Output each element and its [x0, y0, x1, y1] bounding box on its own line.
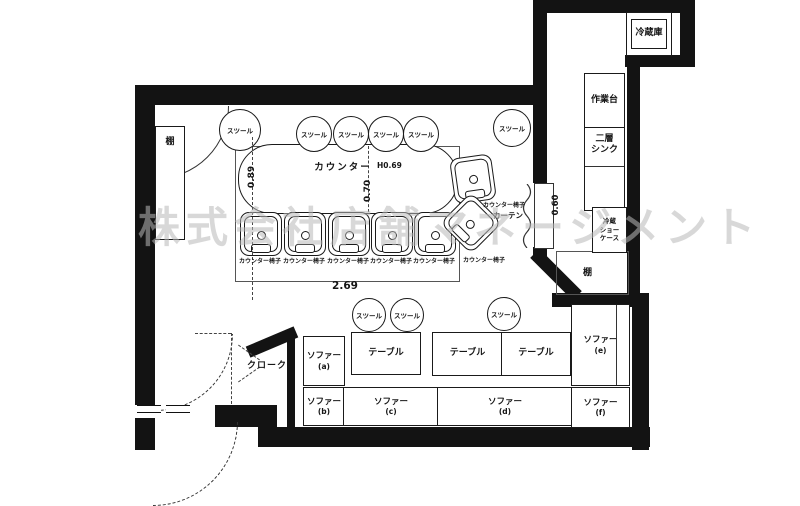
stool-label: スツール	[227, 125, 253, 135]
sofa-name: ソファー	[374, 397, 408, 408]
watermark: 株式会社店舗マネージメント	[138, 194, 761, 255]
refrigerator: 冷蔵庫	[626, 12, 672, 56]
stool-label: スツール	[373, 129, 399, 139]
work-table: 作業台	[584, 73, 625, 129]
stool: スツール	[487, 297, 521, 331]
sofa-tag: (e)	[595, 346, 607, 355]
counter-label: カウンター	[308, 159, 378, 173]
wall-divider-upper	[533, 13, 547, 183]
table-label: テーブル	[518, 348, 553, 359]
shelf-kitchen-label: 棚	[583, 265, 592, 278]
stool-label: スツール	[356, 310, 382, 320]
wall-cloak-right	[287, 330, 295, 430]
cloak-label: クローク	[238, 358, 296, 371]
sofa-f: ソファー (f)	[571, 387, 630, 428]
sofa-name: ソファー	[488, 397, 522, 408]
dim-depth-label: 0.89	[247, 161, 257, 193]
counter-chair-label: カウンター椅子	[458, 255, 510, 264]
sofa-name: ソファー	[583, 398, 617, 409]
stool-label: スツール	[408, 129, 434, 139]
stool: スツール	[219, 109, 261, 151]
stool: スツール	[296, 116, 332, 152]
table: テーブル	[351, 332, 421, 375]
dim-length-label: 2.69	[320, 280, 370, 292]
sofa-tag: (c)	[385, 407, 396, 416]
shelf-kitchen-outline	[556, 251, 629, 295]
entrance-door-mark	[137, 405, 161, 413]
refrigerator-label: 冷蔵庫	[631, 19, 666, 48]
table-label: テーブル	[368, 348, 403, 359]
sofa-tag: (f)	[595, 408, 605, 417]
sofa-tag: (a)	[318, 362, 330, 371]
stool-label: スツール	[394, 310, 420, 320]
wall-bottom	[258, 427, 650, 447]
sofa-d: ソファー (d)	[437, 387, 573, 426]
stool-label: スツール	[301, 129, 327, 139]
stool: スツール	[493, 109, 531, 147]
sofa-tag: (d)	[499, 407, 511, 416]
sofa-c: ソファー (c)	[343, 387, 439, 426]
sofa-name: ソファー	[583, 335, 617, 346]
table-label: テーブル	[450, 348, 485, 359]
sink-label-2: シンク	[591, 145, 618, 156]
sofa-a: ソファー (a)	[303, 336, 345, 386]
wall-nook-right	[680, 0, 695, 62]
stool: スツール	[368, 116, 404, 152]
sofa-name: ソファー	[307, 397, 341, 408]
wall-left-lower	[135, 418, 155, 450]
sofa-tag: (b)	[318, 407, 330, 416]
stool: スツール	[333, 116, 369, 152]
stool-label: スツール	[499, 123, 525, 133]
table: テーブル	[501, 332, 571, 376]
stool: スツール	[352, 298, 386, 332]
counter-height-label: H0.69	[377, 161, 402, 170]
cloak-boundary-left	[231, 333, 232, 404]
sofa-b: ソファー (b)	[303, 387, 345, 426]
entrance-door-mark	[166, 405, 190, 413]
work-table-label: 作業台	[591, 95, 618, 106]
sofa-name: ソファー	[307, 351, 341, 362]
counter-chair-label: カウンター椅子	[408, 256, 460, 265]
cloak-boundary-top	[195, 333, 231, 334]
sink-label-1: 二層	[595, 134, 613, 145]
sofa-e: ソファー (e)	[571, 304, 630, 386]
table: テーブル	[432, 332, 503, 376]
stool-label: スツール	[491, 309, 517, 319]
wall-top-main	[135, 85, 547, 105]
stool-label: スツール	[338, 129, 364, 139]
stool: スツール	[390, 298, 424, 332]
shelf-left-label: 棚	[165, 137, 174, 148]
entrance-arc-upper	[79, 257, 233, 411]
stool: スツール	[403, 116, 439, 152]
